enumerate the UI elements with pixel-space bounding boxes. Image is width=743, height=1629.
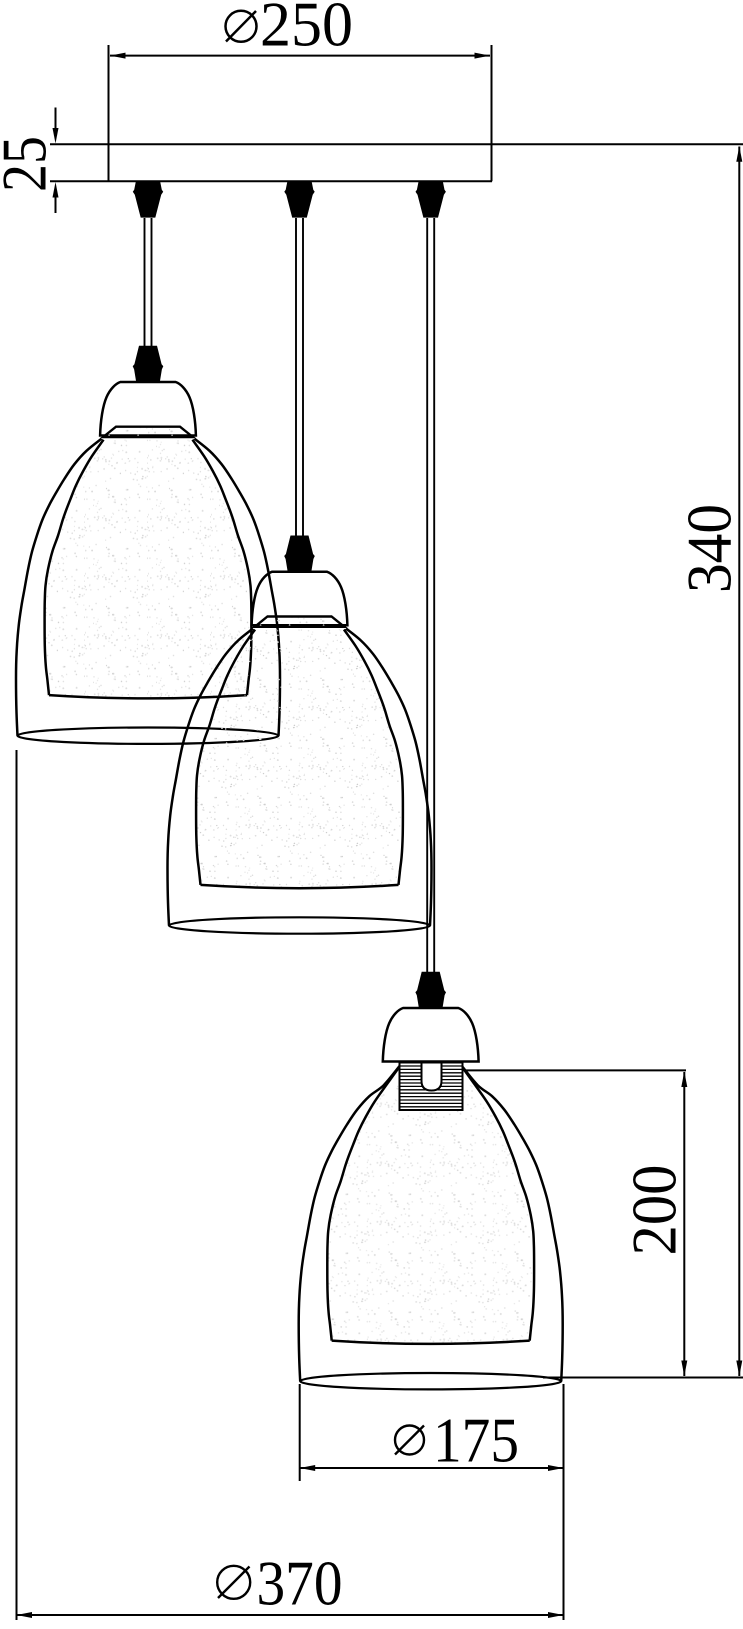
svg-text:175: 175 bbox=[433, 1405, 519, 1476]
svg-text:250: 250 bbox=[260, 0, 353, 60]
svg-text:370: 370 bbox=[257, 1548, 343, 1619]
svg-text:200: 200 bbox=[619, 1165, 690, 1256]
svg-text:25: 25 bbox=[0, 136, 60, 192]
svg-text:340: 340 bbox=[674, 504, 743, 593]
